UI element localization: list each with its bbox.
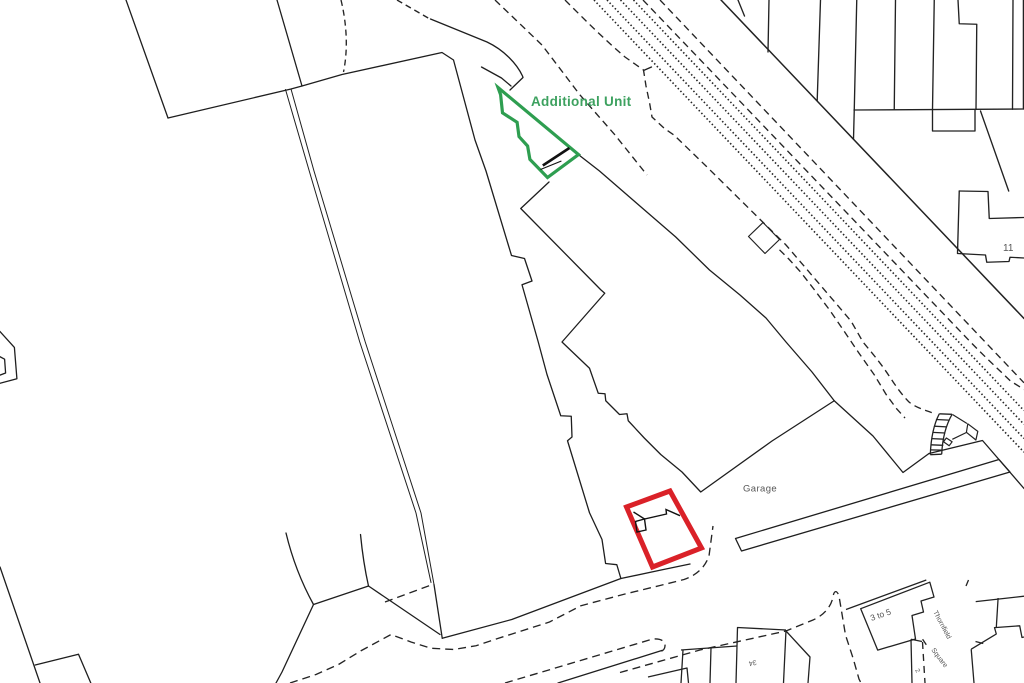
svg-text:Additional Unit: Additional Unit <box>531 94 632 109</box>
svg-text:11: 11 <box>1003 243 1014 254</box>
svg-text:Garage: Garage <box>743 484 777 495</box>
